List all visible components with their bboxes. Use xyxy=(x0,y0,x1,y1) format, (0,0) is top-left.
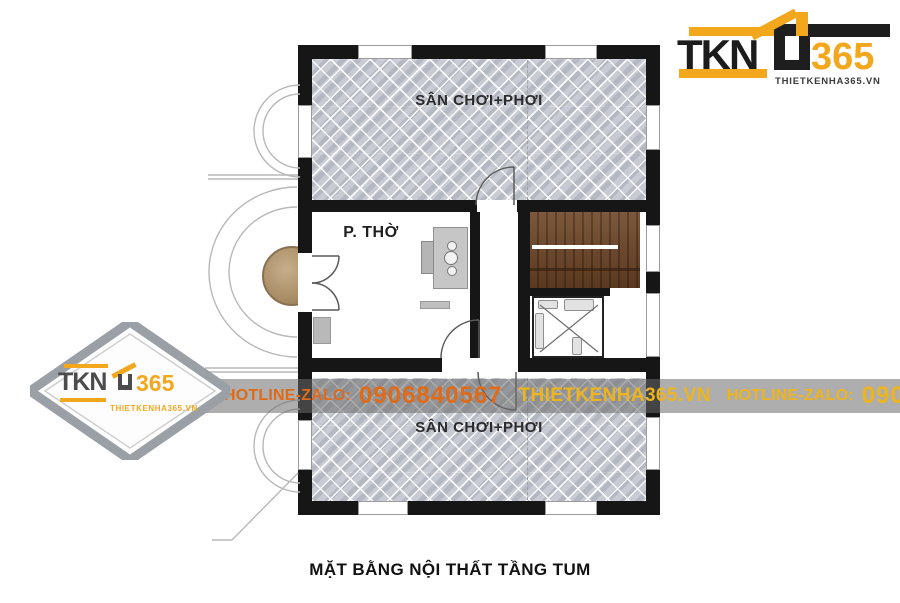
window-right-3 xyxy=(646,293,660,357)
door-gap-terrace-top xyxy=(477,200,517,212)
wall-hall-stair xyxy=(518,204,530,365)
incense-bowl-1 xyxy=(447,241,457,251)
house-chimney-icon xyxy=(796,12,808,36)
brand-number: 365 xyxy=(811,38,874,76)
door-gap-terrace-bottom xyxy=(480,358,518,372)
website-watermark: THIETKENHA365.VN xyxy=(519,385,711,407)
brand-website: THIETKENHA365.VN xyxy=(110,404,198,413)
brand-name: TKN xyxy=(58,370,106,395)
window-top-1 xyxy=(358,45,412,59)
floor-plan-page: SÂN CHƠI+PHƠI P. THỜ SÂN CHƠI+PHƠI HOTLI xyxy=(0,0,900,603)
brand-bar-bottom xyxy=(60,398,106,402)
door-gap-balcony xyxy=(298,253,312,312)
prayer-bench xyxy=(420,301,450,309)
incense-bowl-2 xyxy=(444,251,458,265)
shaft-fixture-2 xyxy=(564,299,594,311)
window-right-1 xyxy=(646,105,660,150)
wall-stair-bottom xyxy=(530,288,610,296)
wall-bottom xyxy=(298,501,660,515)
staircase xyxy=(528,212,640,288)
house-icon xyxy=(118,374,132,390)
window-right-2 xyxy=(646,225,660,272)
hotline-watermark-band: HOTLINE-ZALO: 0906840567 THIETKENHA365.V… xyxy=(200,379,900,413)
terrace-top-joint-line xyxy=(527,60,528,200)
house-icon xyxy=(774,36,810,70)
worship-room-label: P. THỜ xyxy=(316,224,426,246)
stool xyxy=(313,317,331,344)
terrace-top-floor xyxy=(312,59,646,200)
hotline-label-2: HOTLINE-ZALO: xyxy=(727,387,854,405)
window-left-1 xyxy=(298,105,312,158)
stair-handrail xyxy=(532,245,618,249)
wall-top xyxy=(298,45,660,59)
window-bottom-2 xyxy=(545,501,597,515)
window-bottom-1 xyxy=(358,501,408,515)
incense-bowl-3 xyxy=(447,266,457,276)
header-brand-logo: TKN 365 THIETKENHA365.VN xyxy=(675,12,895,90)
window-top-2 xyxy=(545,45,597,59)
terrace-top-label: SÂN CHƠI+PHƠI xyxy=(312,92,646,114)
hotline-number-2: 0906840567 xyxy=(862,382,900,410)
wall-worship-hall xyxy=(470,212,480,358)
shaft-fixture-3 xyxy=(535,313,544,349)
house-door-icon xyxy=(122,374,128,385)
hotline-number-1: 0906840567 xyxy=(359,382,502,410)
brand-website: THIETKENHA365.VN xyxy=(775,76,881,87)
window-right-4 xyxy=(646,417,660,470)
plan-caption: MẶT BẰNG NỘI THẤT TẦNG TUM xyxy=(0,560,900,584)
balcony-roof-outlines xyxy=(205,85,300,540)
shaft-fixture-1 xyxy=(538,300,558,309)
shaft-fixture-4 xyxy=(572,337,582,355)
hotline-label-1: HOTLINE-ZALO: xyxy=(224,387,351,405)
brand-number: 365 xyxy=(136,372,174,395)
diamond-watermark-logo: TKN 365 THIETKENHA365.VN xyxy=(30,322,230,460)
window-left-2 xyxy=(298,420,312,470)
diamond-brand-logo: TKN 365 THIETKENHA365.VN xyxy=(58,364,208,420)
house-door-icon xyxy=(785,36,799,60)
door-gap-worship xyxy=(442,358,480,372)
terrace-bottom-label: SÂN CHƠI+PHƠI xyxy=(312,419,646,441)
brand-bar-bottom xyxy=(679,69,767,78)
stair-step-edge xyxy=(528,268,640,271)
